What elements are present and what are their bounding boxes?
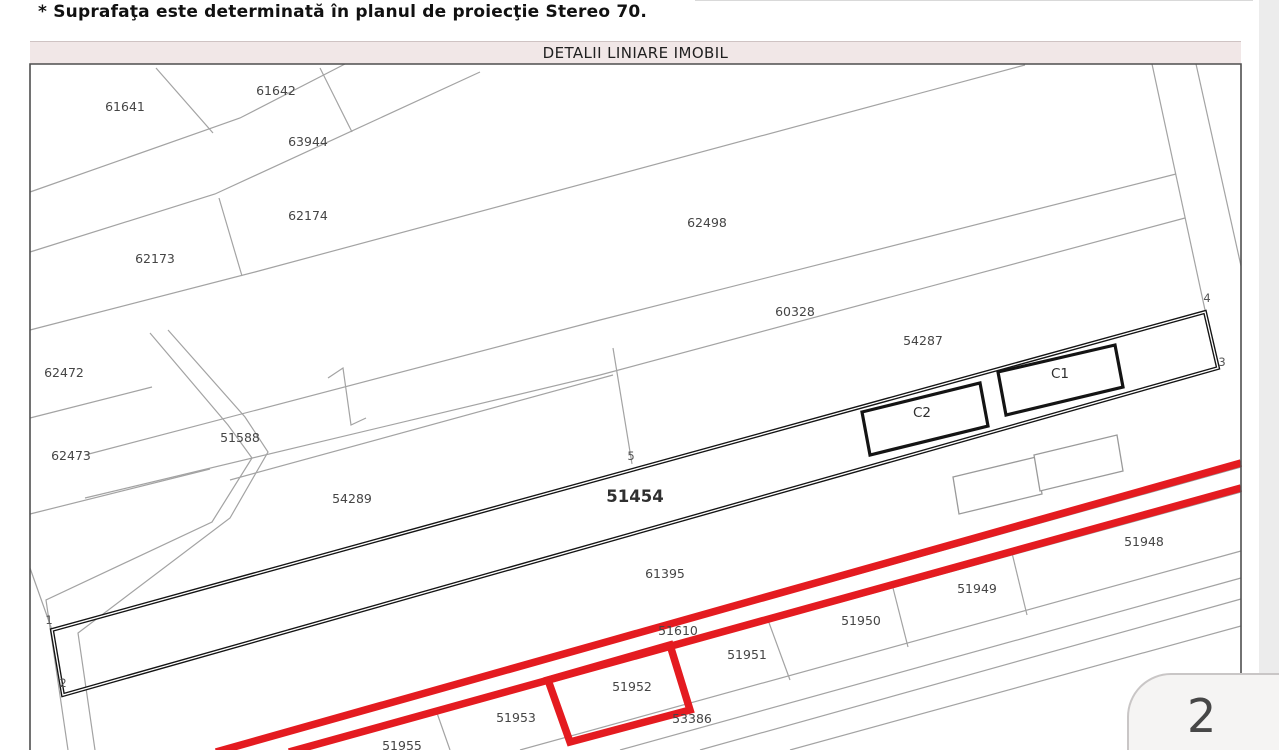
vertex-label-1: 1 — [45, 613, 52, 627]
parcel-label-60328: 60328 — [775, 304, 815, 319]
parcel-label-51950: 51950 — [841, 613, 881, 628]
parcel-label-54289: 54289 — [332, 491, 372, 506]
parcel-label-61395: 61395 — [645, 566, 685, 581]
parcel-label-62174: 62174 — [288, 208, 328, 223]
parcel-label-63944: 63944 — [288, 134, 328, 149]
parcel-lines-gray — [30, 64, 1241, 750]
map-frame — [30, 64, 1241, 750]
viewer-gutter — [1259, 0, 1279, 750]
parcel-label-51588: 51588 — [220, 430, 260, 445]
parcel-label-51948: 51948 — [1124, 534, 1164, 549]
vertex-label-5: 5 — [627, 449, 634, 463]
annex-building-2 — [1034, 435, 1123, 491]
vertex-label-2: 2 — [59, 676, 66, 690]
page-number: 2 — [1187, 689, 1216, 743]
main-parcel-label-51454: 51454 — [606, 487, 663, 506]
cadastral-map: 6164161642639446217462173624986032854287… — [0, 0, 1279, 750]
building-label-C1: C1 — [1051, 366, 1069, 382]
parcel-label-53386: 53386 — [672, 711, 712, 726]
building-label-C2: C2 — [913, 405, 931, 421]
parcel-labels: 6164161642639446217462173624986032854287… — [44, 83, 1164, 750]
annex-building-1 — [953, 457, 1042, 514]
document-page: * Suprafaţa este determinată în planul d… — [0, 0, 1279, 750]
parcel-label-62472: 62472 — [44, 365, 84, 380]
parcel-label-54287: 54287 — [903, 333, 943, 348]
parcel-label-61642: 61642 — [256, 83, 296, 98]
parcel-label-51952: 51952 — [612, 679, 652, 694]
parcel-label-51610: 51610 — [658, 623, 698, 638]
buildings — [862, 345, 1123, 455]
parcel-label-62498: 62498 — [687, 215, 727, 230]
parcel-label-51951: 51951 — [727, 647, 767, 662]
vertex-label-4: 4 — [1203, 291, 1210, 305]
parcel-label-51949: 51949 — [957, 581, 997, 596]
parcel-label-62173: 62173 — [135, 251, 175, 266]
parcel-label-51955: 51955 — [382, 738, 422, 750]
parcel-label-61641: 61641 — [105, 99, 145, 114]
parcel-label-51953: 51953 — [496, 710, 536, 725]
vertex-label-3: 3 — [1218, 355, 1225, 369]
page-number-badge[interactable]: 2 — [1127, 673, 1279, 750]
parcel-label-62473: 62473 — [51, 448, 91, 463]
